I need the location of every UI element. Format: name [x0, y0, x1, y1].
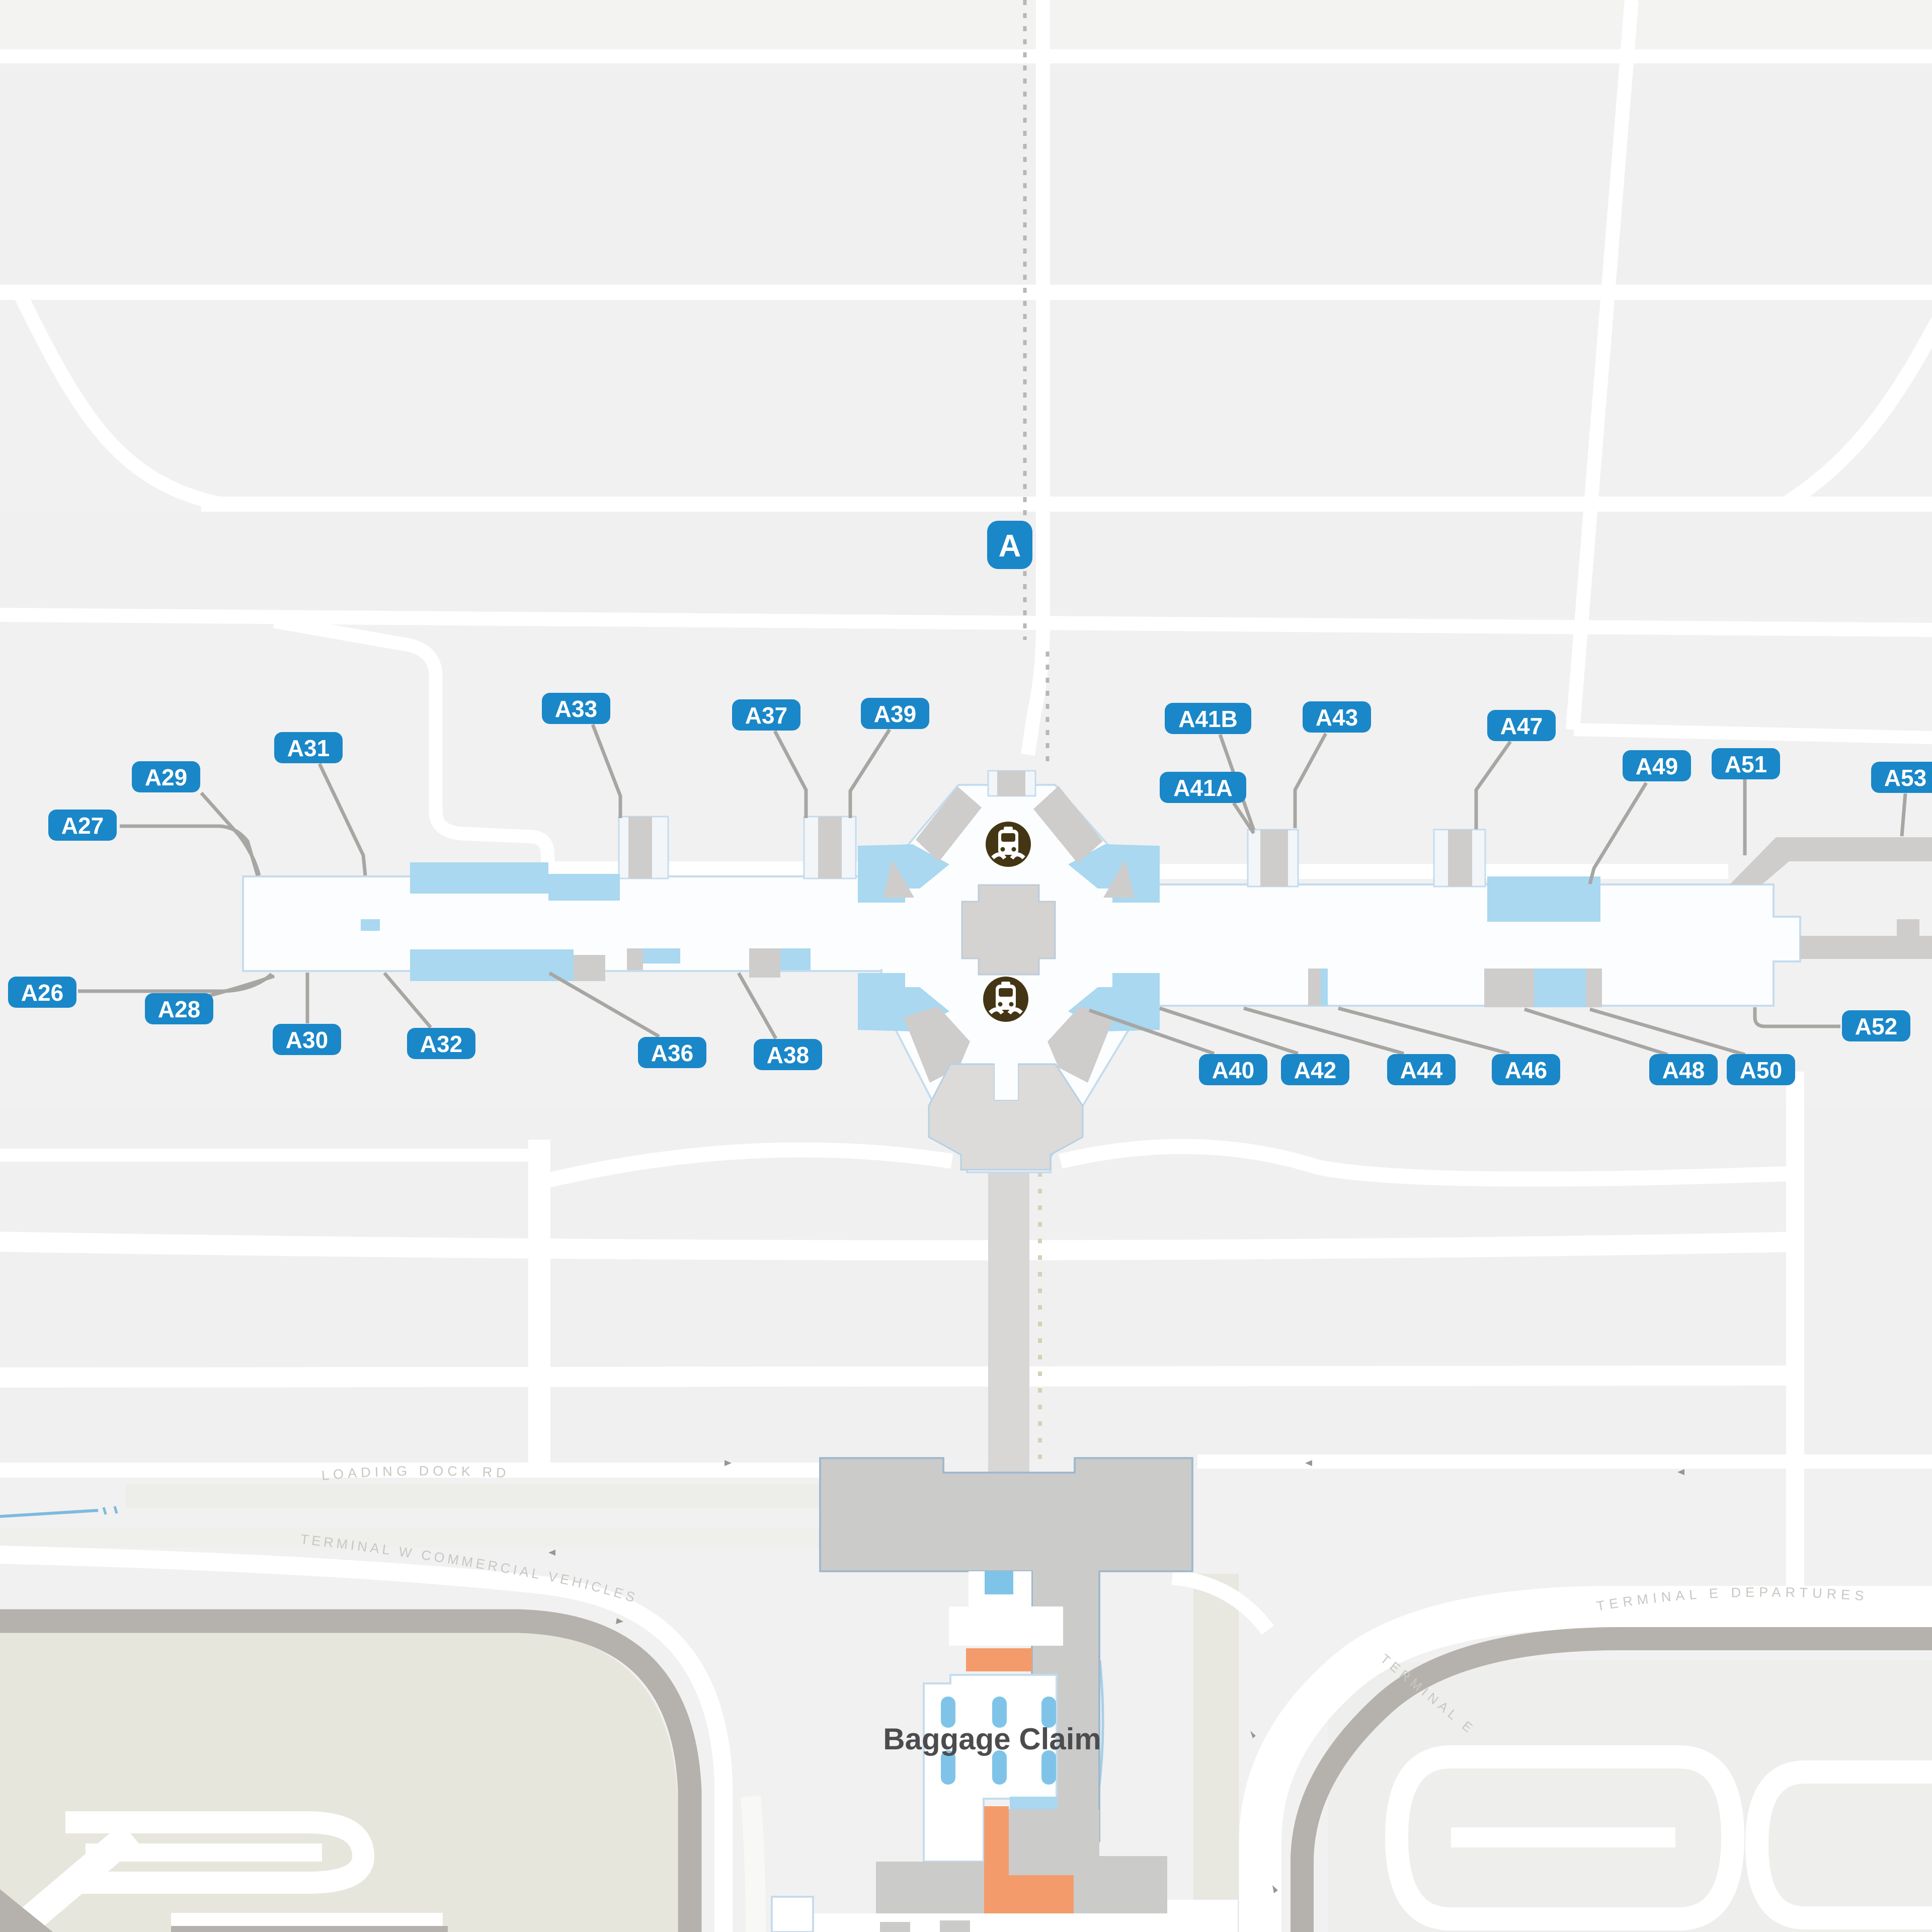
svg-text:Baggage Claim: Baggage Claim	[883, 1722, 1101, 1756]
svg-text:A52: A52	[1855, 1013, 1897, 1039]
svg-text:A38: A38	[767, 1042, 809, 1068]
svg-text:A46: A46	[1505, 1057, 1547, 1083]
svg-text:A30: A30	[286, 1027, 328, 1053]
svg-text:A50: A50	[1740, 1057, 1782, 1083]
svg-text:A31: A31	[287, 735, 330, 761]
svg-text:A42: A42	[1294, 1057, 1336, 1083]
svg-text:A36: A36	[651, 1040, 693, 1066]
svg-text:A43: A43	[1316, 704, 1358, 731]
svg-text:A39: A39	[874, 701, 916, 727]
svg-text:A33: A33	[555, 696, 597, 722]
svg-text:A32: A32	[420, 1031, 462, 1057]
svg-text:A48: A48	[1662, 1057, 1705, 1083]
svg-text:A51: A51	[1725, 751, 1767, 777]
svg-text:A41A: A41A	[1173, 775, 1233, 801]
svg-text:A53: A53	[1884, 765, 1926, 791]
svg-text:A29: A29	[145, 764, 187, 790]
svg-text:A47: A47	[1500, 713, 1543, 739]
svg-text:A49: A49	[1636, 753, 1678, 779]
svg-text:A28: A28	[158, 996, 200, 1022]
svg-text:A27: A27	[61, 813, 104, 839]
svg-text:A26: A26	[21, 980, 63, 1006]
svg-text:A: A	[999, 529, 1021, 563]
svg-text:A41B: A41B	[1178, 706, 1238, 732]
svg-text:A40: A40	[1212, 1057, 1254, 1083]
svg-text:A37: A37	[745, 702, 787, 729]
svg-text:A44: A44	[1400, 1057, 1443, 1083]
